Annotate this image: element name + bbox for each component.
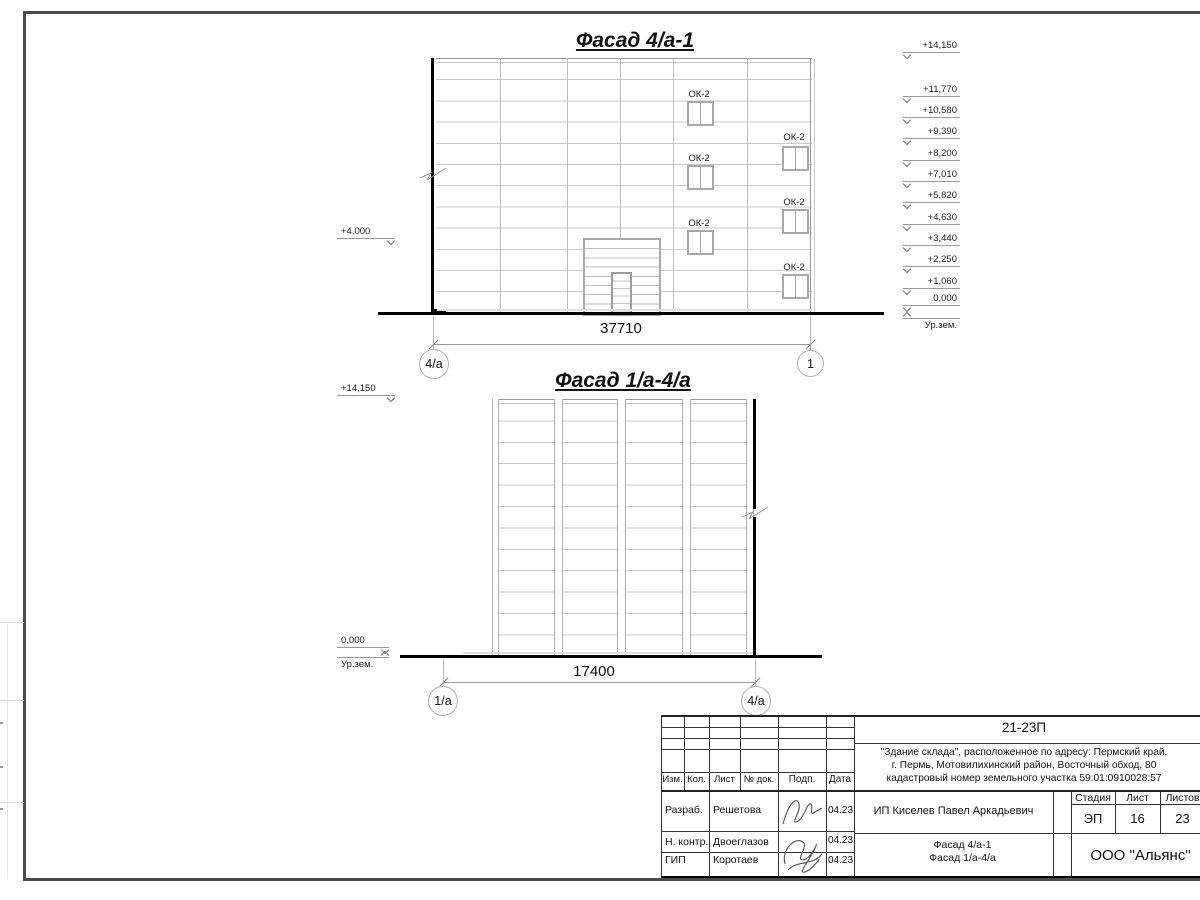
corner-line	[753, 517, 756, 657]
level-arrow-icon	[903, 137, 911, 145]
margin-line	[7, 622, 8, 879]
level-arrow-icon	[903, 312, 911, 320]
window-label: ОК-2	[681, 218, 717, 229]
dimension-line	[443, 682, 755, 683]
tb-doc-title: Фасад 4/а-1 Фасад 1/а-4/а	[854, 839, 1071, 865]
window-mullion	[700, 167, 701, 188]
tb-name: Решетова	[713, 804, 761, 816]
facade-top-title: Фасад 4/а-1	[510, 29, 760, 53]
elevation-mark: +10,580	[903, 105, 960, 118]
tb-line	[661, 876, 1200, 878]
column-strip	[492, 399, 499, 656]
elevation-value: 0,000	[341, 635, 365, 646]
tb-stage-header: Стадия	[1071, 792, 1115, 804]
column-line	[673, 58, 674, 313]
tb-sheet-value: 16	[1115, 811, 1160, 826]
elevation-mark: +1,060	[903, 276, 960, 289]
tb-header-date: Дата	[826, 774, 854, 785]
elevation-mark: +3,440	[903, 233, 960, 246]
corner-line	[753, 399, 756, 509]
tb-line	[661, 715, 1200, 717]
sheet-border-bottom	[23, 878, 1200, 881]
tb-role: Н. контр.	[665, 836, 708, 848]
window-label: ОК-2	[681, 153, 717, 164]
wall-edge-outer-line	[814, 58, 815, 313]
elevation-mark: 0,000	[337, 635, 389, 648]
level-arrow-icon	[903, 244, 911, 252]
window-mullion	[795, 148, 796, 169]
ground-level-label: Ур.зем.	[925, 320, 957, 331]
plinth-line	[437, 309, 812, 311]
level-arrow-icon	[903, 201, 911, 209]
elevation-value: +2,250	[928, 254, 957, 265]
ground-line-top	[378, 312, 884, 315]
tb-header-doc: № док.	[740, 774, 778, 785]
margin-mark	[0, 808, 3, 810]
elevation-value: +1,060	[928, 276, 957, 287]
column-line	[500, 58, 501, 313]
elevation-value: 0,000	[933, 293, 957, 304]
elevation-value: +11,770	[923, 84, 957, 95]
elevation-value: +4,630	[928, 212, 957, 223]
ground-level-mark: Ур.зем.	[903, 318, 960, 332]
axis-bubble-1: 1	[797, 350, 824, 377]
axis-bubble-1a: 1/а	[428, 686, 458, 716]
tb-sheets-header: Листов	[1160, 792, 1200, 804]
wall-edge-line	[810, 58, 811, 313]
parapet-inner-line	[436, 62, 812, 63]
level-arrow-icon	[903, 116, 911, 124]
tb-address-line: "Здание склада", расположенное по адресу…	[854, 746, 1194, 759]
title-block: Изм. Кол. Лист № док. Подп. Дата Разраб.…	[661, 715, 1200, 878]
window	[782, 146, 809, 171]
window	[782, 274, 809, 299]
tb-stage-value: ЭП	[1071, 811, 1115, 826]
window-mullion	[700, 103, 701, 124]
break-symbol	[742, 504, 768, 520]
facade-bottom-title: Фасад 1/а-4/а	[498, 369, 748, 393]
elevation-value: +14,150	[341, 383, 376, 394]
axis-bubble-4a: 4/а	[419, 349, 449, 379]
tb-doc-title-line: Фасад 1/а-4/а	[854, 852, 1071, 865]
tb-company: ООО "Альянс"	[1071, 847, 1200, 864]
elevation-mark: +2,250	[903, 254, 960, 267]
signature	[779, 794, 825, 830]
tb-header-kol: Кол.	[684, 774, 709, 785]
tb-line	[661, 772, 854, 773]
extension-line	[433, 316, 434, 352]
margin-line	[0, 700, 24, 701]
tb-name: Коротаев	[713, 854, 758, 866]
window-mullion	[795, 211, 796, 232]
elevation-value: +7,010	[928, 169, 957, 180]
sheet-border-top	[24, 11, 1200, 14]
window	[687, 230, 714, 255]
tb-name: Двоеглазов	[713, 836, 769, 848]
elevation-value: +10,580	[922, 105, 957, 116]
tb-date: 04.23	[827, 805, 854, 816]
level-arrow-icon	[903, 159, 911, 167]
window	[782, 209, 809, 234]
tb-role: ГИП	[665, 854, 686, 866]
elevation-value: +14,150	[922, 40, 957, 51]
level-arrow-icon	[387, 237, 395, 245]
margin-mark	[0, 766, 3, 768]
ground-line-bottom	[400, 655, 822, 658]
tb-line	[661, 738, 854, 739]
elevation-mark: +9,390	[903, 126, 960, 139]
level-arrow-icon	[387, 394, 395, 402]
elevation-mark: +11,770	[903, 84, 960, 97]
tb-line	[854, 833, 1200, 834]
extension-line	[810, 316, 811, 352]
dimension-line	[433, 344, 810, 345]
window	[687, 165, 714, 190]
ground-level-label: Ур.зем.	[341, 659, 373, 670]
tb-header-podp: Подп.	[778, 774, 826, 785]
tb-line	[661, 749, 854, 750]
window-mullion	[700, 232, 701, 253]
tb-line	[854, 743, 1200, 744]
dimension-label-bottom: 17400	[554, 663, 634, 680]
elevation-mark: +14,150	[903, 40, 960, 53]
dimension-label-top: 37710	[581, 320, 661, 337]
corner-line	[431, 58, 434, 313]
level-arrow-icon	[903, 180, 911, 188]
signature	[777, 828, 827, 876]
level-arrow-icon	[903, 51, 911, 59]
margin-line	[0, 802, 24, 803]
level-arrow-icon	[903, 265, 911, 273]
tb-line	[1071, 804, 1200, 805]
tb-address-line: кадастровый номер земельного участка 59:…	[854, 772, 1194, 785]
tb-date: 04.23	[827, 855, 854, 866]
elevation-mark: +7,010	[903, 169, 960, 182]
axis-bubble-4a: 4/а	[741, 686, 771, 716]
elevation-value: +9,390	[928, 126, 957, 137]
window-label: ОК-2	[681, 89, 717, 100]
level-arrow-icon	[381, 651, 389, 659]
column-line	[567, 58, 568, 313]
tb-sheets-value: 23	[1160, 811, 1200, 826]
column-strip	[682, 399, 691, 656]
elevation-mark: +4,630	[903, 212, 960, 225]
window	[687, 101, 714, 126]
elevation-mark: +14,150	[337, 383, 395, 396]
plinth-line	[463, 652, 753, 654]
tb-client: ИП Киселев Павел Аркадьевич	[854, 805, 1053, 817]
margin-line	[0, 622, 24, 623]
tb-line	[661, 727, 854, 728]
tb-address-line: г. Пермь, Мотовилихинский район, Восточн…	[854, 759, 1194, 772]
elevation-mark: +8,200	[903, 148, 960, 161]
level-arrow-icon	[903, 95, 911, 103]
tb-header-izm: Изм.	[661, 774, 684, 785]
elevation-value: +8,200	[928, 148, 957, 159]
ground-level-mark: Ур.зем.	[337, 657, 389, 671]
elevation-value: +5,820	[928, 190, 957, 201]
sectional-door	[583, 238, 661, 316]
column-line	[747, 58, 748, 313]
tb-date: 04.23	[827, 835, 854, 846]
tb-sheet-header: Лист	[1115, 792, 1160, 804]
margin-mark	[0, 722, 3, 724]
elevation-value: +3,440	[928, 233, 957, 244]
drawing-sheet: { "facade_top": { "title": "Фасад 4/а-1"…	[0, 0, 1200, 900]
tb-project-code: 21-23П	[854, 720, 1194, 735]
elevation-value: +4,000	[341, 226, 370, 237]
column-strip	[617, 399, 626, 656]
elevation-mark: +5,820	[903, 190, 960, 203]
elevation-mark: +4,000	[337, 226, 395, 239]
window-label: ОК-2	[776, 262, 812, 273]
level-arrow-icon	[903, 223, 911, 231]
tb-project-address: "Здание склада", расположенное по адресу…	[854, 746, 1194, 786]
elevation-mark: 0,000	[903, 293, 960, 306]
window-mullion	[795, 276, 796, 297]
tb-role: Разраб.	[665, 804, 703, 816]
sheet-border-left	[23, 11, 26, 881]
window-label: ОК-2	[776, 197, 812, 208]
window-label: ОК-2	[776, 132, 812, 143]
tb-doc-title-line: Фасад 4/а-1	[854, 839, 1071, 852]
tb-header-list: Лист	[709, 774, 740, 785]
column-strip	[554, 399, 563, 656]
break-symbol	[420, 165, 446, 181]
